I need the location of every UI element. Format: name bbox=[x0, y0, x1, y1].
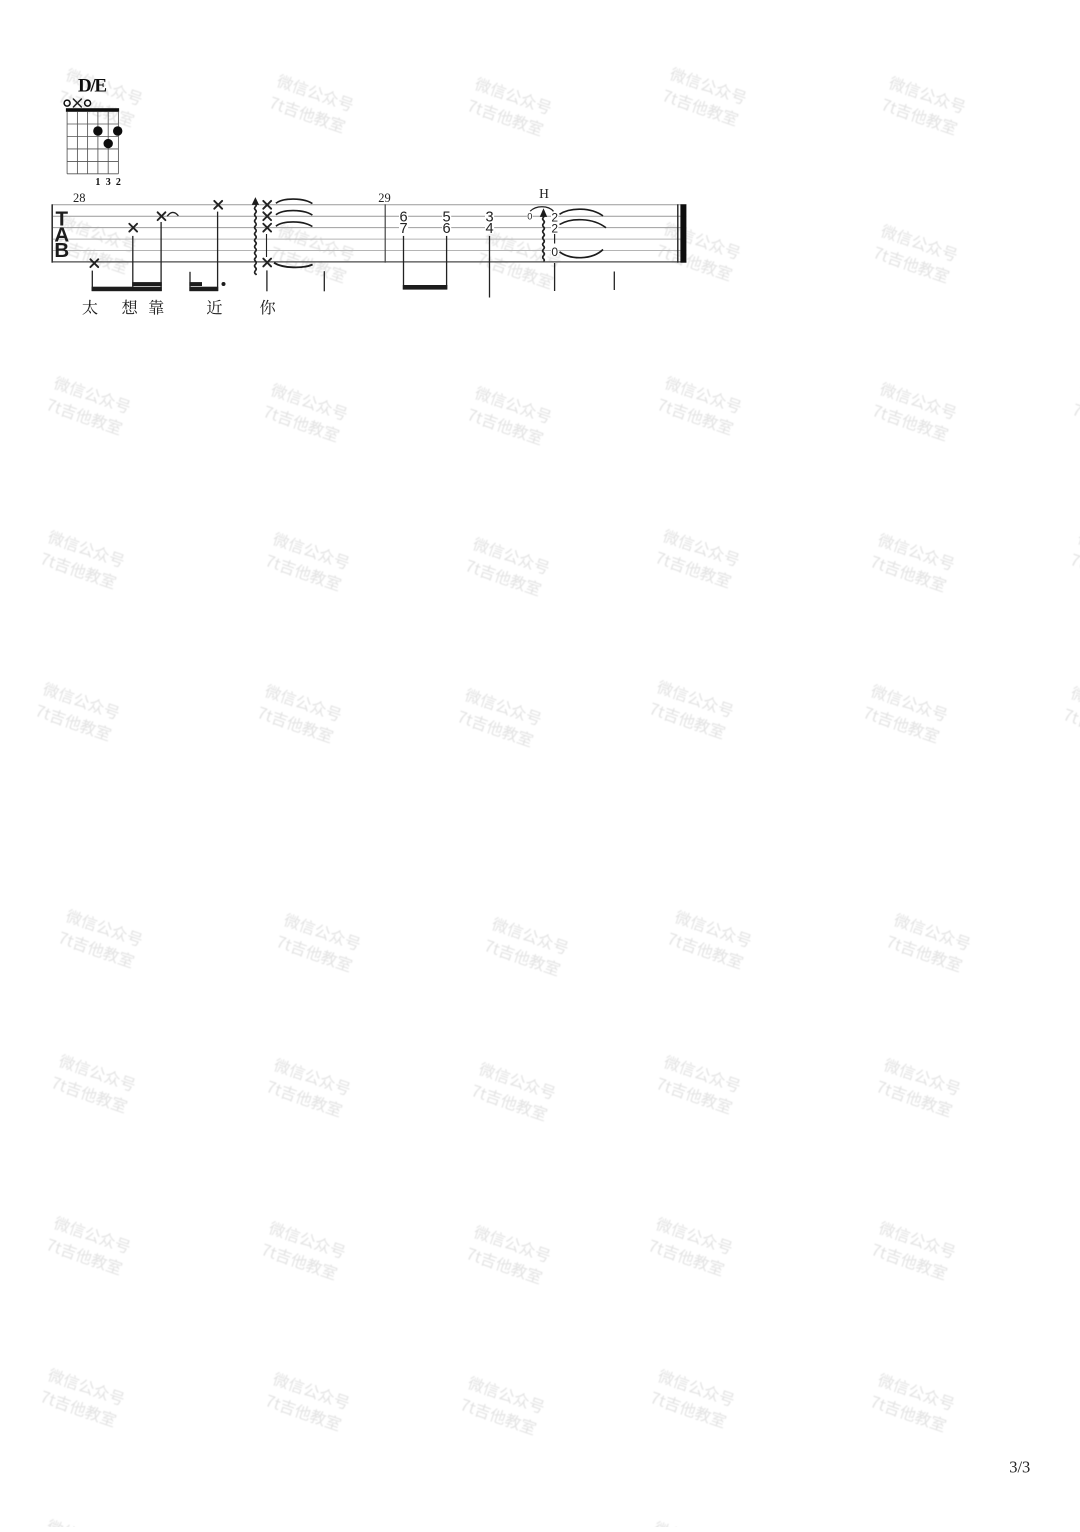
svg-text:H: H bbox=[539, 186, 549, 201]
svg-text:29: 29 bbox=[378, 191, 391, 205]
svg-text:4: 4 bbox=[485, 221, 493, 237]
svg-text:B: B bbox=[54, 239, 69, 262]
svg-text:3/3: 3/3 bbox=[1009, 1457, 1030, 1476]
svg-text:7: 7 bbox=[399, 221, 407, 237]
svg-text:6: 6 bbox=[443, 221, 451, 237]
svg-text:D/E: D/E bbox=[78, 76, 107, 97]
svg-text:2: 2 bbox=[116, 177, 121, 188]
svg-text:28: 28 bbox=[73, 191, 86, 205]
svg-text:0: 0 bbox=[527, 212, 532, 222]
svg-text:2: 2 bbox=[551, 222, 558, 236]
svg-text:3: 3 bbox=[106, 177, 111, 188]
svg-text:1: 1 bbox=[95, 177, 100, 188]
svg-text:0: 0 bbox=[551, 245, 558, 259]
